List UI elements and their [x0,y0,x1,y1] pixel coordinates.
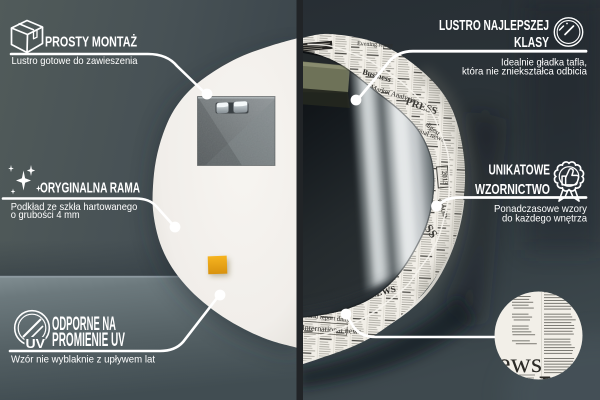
svg-text:PROMIENIE UV: PROMIENIE UV [52,330,125,351]
svg-text:UNIKATOWE: UNIKATOWE [489,162,551,179]
svg-text:UV: UV [26,337,46,351]
svg-text:o grubości 4 mm: o grubości 4 mm [11,209,80,221]
svg-text:KLASY: KLASY [514,34,549,51]
svg-text:Wzór nie wyblaknie z upływem l: Wzór nie wyblaknie z upływem lat [11,354,155,366]
svg-text:ORYGINALNA RAMA: ORYGINALNA RAMA [40,180,140,197]
svg-text:Lustro gotowe do zawieszenia: Lustro gotowe do zawieszenia [12,55,138,67]
svg-text:która nie zniekształca odbicia: która nie zniekształca odbicia [462,66,587,78]
svg-text:WZORNICTWO: WZORNICTWO [475,181,550,198]
svg-text:LUSTRO NAJLEPSZEJ: LUSTRO NAJLEPSZEJ [439,17,549,34]
svg-text:PROSTY MONTAŻ: PROSTY MONTAŻ [45,34,137,51]
svg-text:do każdego wnętrza: do każdego wnętrza [502,213,587,225]
